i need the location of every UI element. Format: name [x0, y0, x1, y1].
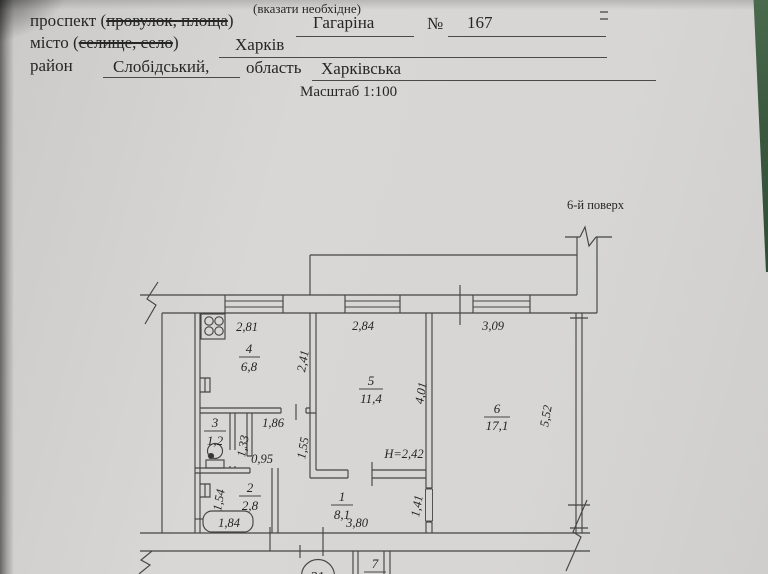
- room-divider-wall: [426, 313, 432, 533]
- room2-number: 2: [247, 480, 254, 495]
- room-fraction-lines: [204, 357, 510, 572]
- top-wall: [140, 295, 597, 313]
- dim-bathtub: 1,84: [218, 516, 240, 530]
- room7-number: 7: [372, 556, 379, 571]
- stove-burner-icon: [205, 317, 213, 325]
- dim-corridor-depth: 1,55: [294, 436, 312, 460]
- ceiling-height-label: H=2,42: [383, 447, 423, 461]
- toilet-tank-icon: [206, 460, 224, 468]
- wall-break-icon: [566, 500, 590, 571]
- toilet-icon-detail: [208, 453, 213, 458]
- apartment-number: 21: [311, 570, 325, 574]
- room3-area: 1,2: [207, 433, 224, 448]
- dim-room6-width: 3,09: [481, 319, 505, 333]
- room2-area: 2,8: [242, 498, 259, 513]
- wall-break-icon: [145, 282, 158, 324]
- right-wall: [570, 313, 588, 533]
- dim-shaft: 1,33: [234, 434, 252, 458]
- stove-burner-icon: [215, 327, 223, 335]
- floor-label: 6-й поверх: [567, 198, 625, 212]
- vent-duct-icon: [200, 484, 210, 497]
- left-wall: [162, 313, 200, 533]
- room4-area: 6,8: [241, 359, 258, 374]
- dim-corridor-width: 1,86: [262, 416, 285, 430]
- door-leaf: [426, 489, 433, 521]
- floor-plan-svg: 6-й поверх 2,81 2,84 3,09 2,41 4,01 5,52…: [0, 0, 768, 574]
- room5-area: 11,4: [360, 391, 382, 406]
- room6-number: 6: [494, 401, 501, 416]
- room6-area: 17,1: [486, 418, 509, 433]
- dim-bath-depth: 1,54: [210, 488, 228, 512]
- room3-number: 3: [211, 415, 219, 430]
- room5-number: 5: [368, 373, 375, 388]
- dim-room6-depth: 5,52: [537, 404, 555, 428]
- dim-hall-door: 1,41: [408, 494, 426, 518]
- balcony-outline: [310, 237, 612, 313]
- dim-kitchen-width: 2,81: [236, 320, 258, 334]
- room5-bottom-wall: [310, 462, 426, 486]
- room4-number: 4: [246, 341, 253, 356]
- stove-burner-icon: [215, 317, 223, 325]
- dim-room5-width: 2,84: [352, 319, 374, 333]
- bottom-wall: [140, 527, 590, 558]
- dim-passage: 0,95: [251, 452, 273, 466]
- kitchen-wall: [200, 408, 316, 413]
- room1-number: 1: [339, 489, 346, 504]
- dim-room5-depth: 4,01: [412, 381, 430, 405]
- dim-kitchen-depth: 2,41: [294, 349, 312, 373]
- vent-duct-icon: [200, 378, 210, 392]
- room1-area: 8,1: [334, 507, 350, 522]
- wall-break-icon: [139, 551, 152, 574]
- stove-burner-icon: [205, 327, 213, 335]
- window-icon: [225, 301, 530, 307]
- balcony-break-icon: [580, 227, 596, 246]
- scanned-floor-plan-page: { "header": { "hint": "(вказати необхідн…: [0, 0, 768, 574]
